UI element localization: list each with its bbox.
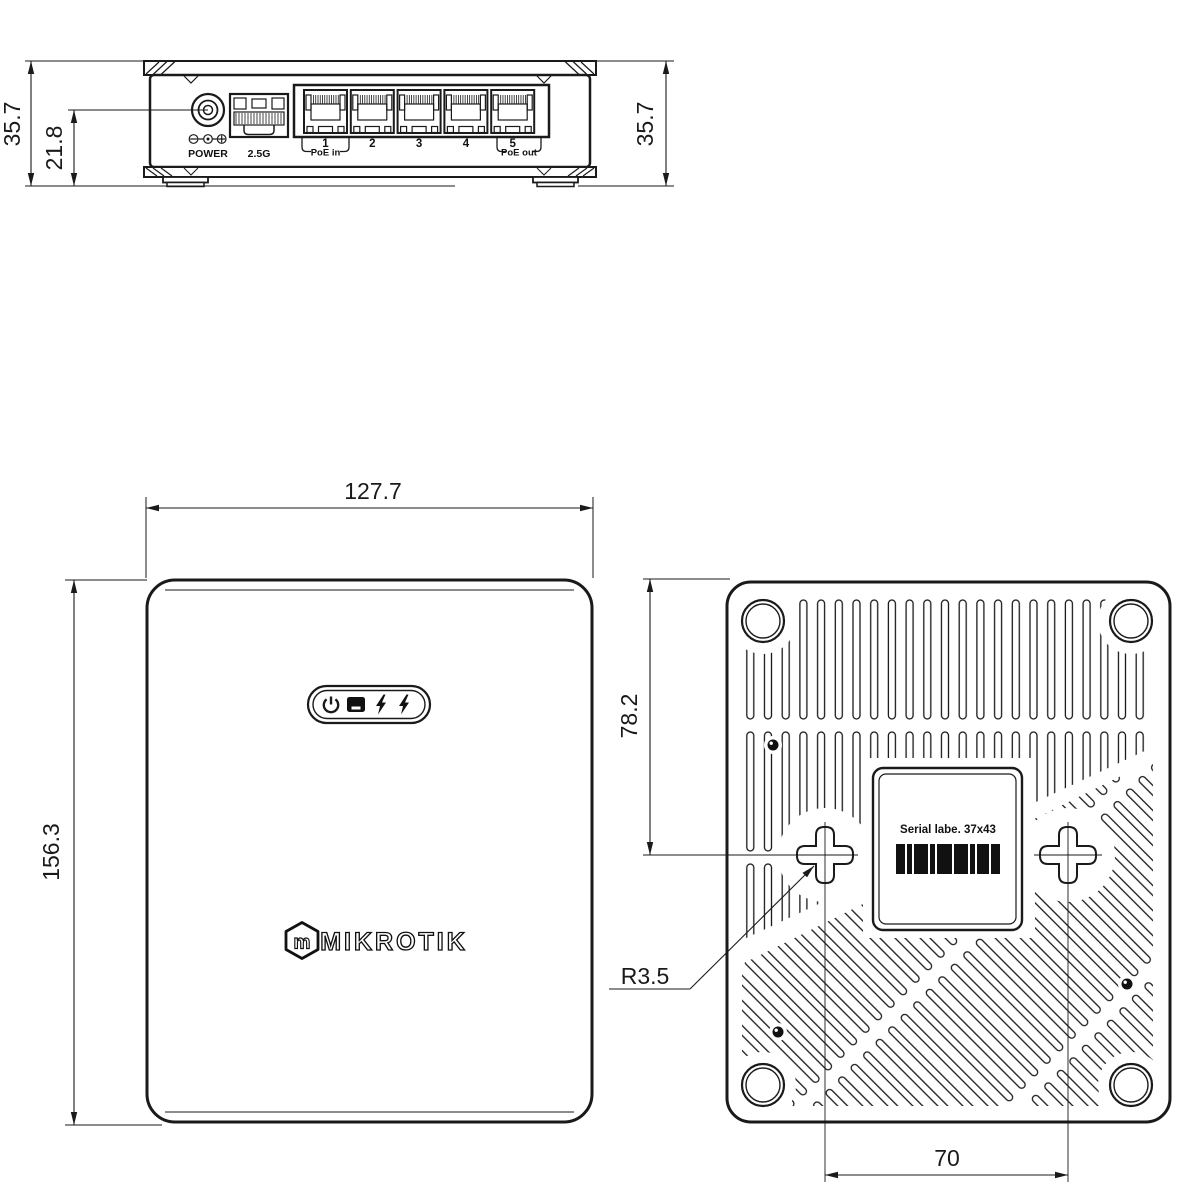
screw-hole xyxy=(773,1027,784,1038)
top-cover-view: m MIKROTIK xyxy=(147,580,592,1122)
poe-in-label: PoE in xyxy=(311,148,341,159)
power-label: POWER xyxy=(188,148,228,160)
ethernet-port-3 xyxy=(398,90,441,133)
poe-out-label: PoE out xyxy=(501,148,538,159)
dim-label-height-left: 35.7 xyxy=(0,102,25,147)
dim-label-hole-offset: 78.2 xyxy=(616,694,642,739)
port-number-3: 3 xyxy=(416,138,422,150)
ethernet-port-4 xyxy=(444,90,487,133)
port-number-2: 2 xyxy=(369,138,375,150)
port-number-4: 4 xyxy=(463,138,470,150)
logo-monogram: m xyxy=(294,933,311,954)
logo-text: MIKROTIK xyxy=(320,928,468,956)
screw-hole xyxy=(1122,979,1133,990)
rear-top-lid xyxy=(144,61,596,75)
sfp-port xyxy=(230,94,288,137)
sfp-label: 2.5G xyxy=(248,148,271,160)
sfp-led-icon xyxy=(347,697,365,712)
dim-label-depth: 156.3 xyxy=(38,823,64,881)
rubber-foot-right xyxy=(533,177,578,187)
dim-label-jack-height: 21.8 xyxy=(41,126,67,171)
rear-panel-view: POWER 2.5G 1 2 3 4 5 PoE in PoE out xyxy=(144,61,596,187)
ethernet-port-1 xyxy=(304,90,347,133)
top-cover-outline xyxy=(147,580,592,1122)
ethernet-port-5 xyxy=(491,90,534,133)
serial-label: Serial labe. 37x43 xyxy=(873,768,1022,930)
radius-callout-label: R3.5 xyxy=(621,963,670,989)
rubber-foot-left xyxy=(163,177,208,187)
serial-label-text: Serial labe. 37x43 xyxy=(900,824,996,836)
technical-drawing: POWER 2.5G 1 2 3 4 5 PoE in PoE out xyxy=(0,0,1181,1200)
ethernet-port-2 xyxy=(351,90,394,133)
barcode xyxy=(896,844,1000,874)
dim-label-width: 127.7 xyxy=(344,478,402,504)
dim-label-height-right: 35.7 xyxy=(632,102,658,147)
mikrotik-logo: m MIKROTIK xyxy=(286,923,468,959)
rear-bottom-plate xyxy=(144,167,596,177)
dim-label-hole-spacing: 70 xyxy=(934,1145,960,1171)
screw-hole xyxy=(768,740,779,751)
bottom-panel-view: Serial labe. 37x43 xyxy=(727,582,1170,1122)
